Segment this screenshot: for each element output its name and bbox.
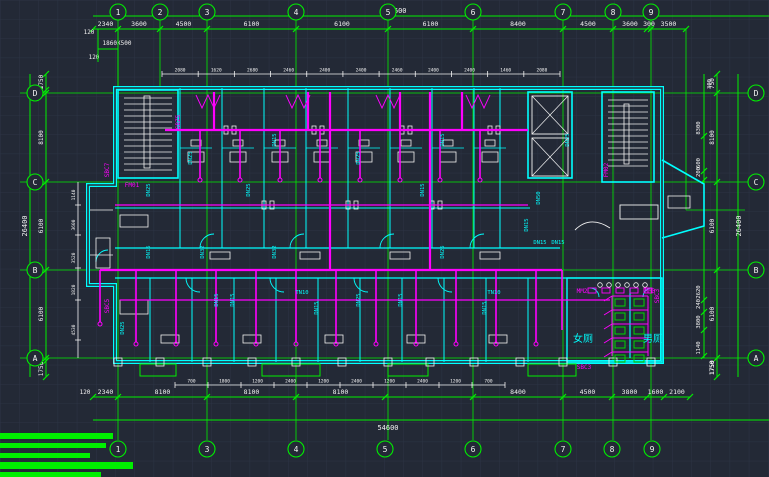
snap-grid [0, 0, 769, 477]
title-block-bar [0, 472, 101, 477]
dim-small-text: 2400 [464, 68, 475, 74]
pipe-label-DN25: DN25 [246, 183, 252, 196]
dim-text: 3500 [661, 20, 677, 28]
dim-text: 3600 [131, 20, 147, 28]
dim-text: 4500 [580, 20, 596, 28]
dim-text: 8100 [244, 388, 260, 396]
dim-text: 2100 [669, 388, 685, 396]
title-block-bar [0, 462, 133, 469]
grid-bubble-top-5-text: 5 [386, 8, 391, 17]
dim-small-text: 2400 [285, 379, 296, 385]
room-label-mens-toilet: 男厕 [643, 333, 663, 345]
grid-bubble-top-4-text: 4 [294, 8, 299, 17]
grid-bubble-bottom-4-text: 4 [294, 445, 299, 454]
dim-small-text: 2400 [428, 68, 439, 74]
dim-small-text: 2080 [536, 68, 547, 74]
dim-text: 6100 [38, 218, 45, 233]
dim-text: 600 [696, 158, 702, 168]
grid-bubble-top-1-text: 1 [116, 8, 121, 17]
dim-text: 300 [707, 79, 713, 89]
dim-text: 8100 [155, 388, 171, 396]
pipe-label-DN15: DN15 [272, 133, 278, 146]
grid-bubble-top-6-text: 6 [471, 8, 476, 17]
dim-text: 8400 [510, 20, 526, 28]
dim-overall-bottom-text: 54600 [377, 424, 398, 432]
dim-small-text: 1200 [450, 379, 461, 385]
dim-small-text: 1460 [500, 68, 511, 74]
dim-small-text: 1620 [211, 68, 222, 74]
grid-bubble-bottom-8-text: 8 [610, 445, 615, 454]
pipe-label-DN15: DN15 [398, 293, 404, 306]
pipe-label-DN15: DN15 [420, 183, 426, 196]
dim-small-text: 1200 [318, 379, 329, 385]
dim-text: 240 [696, 299, 702, 309]
door-label-MM2: MM2 [577, 288, 588, 295]
dim-small-text: 4530 [71, 324, 77, 335]
dim-text: 6100 [334, 20, 350, 28]
dim-text: 6100 [709, 306, 716, 321]
grid-bubble-top-8-text: 8 [611, 8, 616, 17]
dim-small-text: 2400 [356, 68, 367, 74]
dim-text: 120 [80, 389, 91, 396]
pipe-label-DN25: DN25 [356, 293, 362, 306]
dim-small-text: 1820 [71, 284, 77, 295]
grid-bubble-right-C-text: C [754, 178, 759, 187]
dim-small-text: 1140 [71, 189, 77, 200]
pipe-label-DN25: DN25 [565, 133, 571, 146]
dim-text: 1140 [696, 341, 702, 354]
title-block-bar [0, 443, 106, 448]
dim-text: 6100 [244, 20, 260, 28]
grid-bubble-right-A-text: A [754, 354, 759, 363]
riser-label-SBC5: SBC5 [104, 298, 111, 313]
dim-text: 3800 [696, 315, 702, 328]
dim-small-text: 2680 [247, 68, 258, 74]
dim-small-text: 3520 [71, 252, 77, 263]
dim-text: 4500 [580, 388, 596, 396]
dim-text: 8300 [696, 121, 702, 134]
door-label-FM02: FM02 [603, 162, 610, 177]
grid-bubble-right-B-text: B [754, 266, 759, 275]
cad-viewport[interactable]: 5460023403600450061006100610084004500360… [0, 0, 769, 477]
dim-text: 120 [84, 29, 95, 36]
dim-text: 6100 [709, 218, 716, 233]
dim-small-text: 1200 [384, 379, 395, 385]
dim-text: 3800 [622, 388, 638, 396]
pipe-label-DN25: DN25 [188, 151, 194, 164]
title-block-bar [0, 433, 113, 439]
riser-label-SBC3: SBC3 [577, 364, 592, 371]
pipe-label-DN15: DN15 [230, 293, 236, 306]
grid-bubble-bottom-6-text: 6 [471, 445, 476, 454]
pipe-label-TN10: TN10 [295, 290, 308, 296]
dim-text: 300 [643, 20, 655, 28]
dim-overall-left-text: 26400 [21, 215, 29, 236]
pipe-label-DN25: DN25 [120, 321, 126, 334]
riser-label-SBC7: SBC7 [104, 162, 111, 177]
dim-text: 8100 [38, 130, 45, 145]
pipe-label-DN50: DN50 [536, 191, 542, 204]
dim-text: 200 [696, 167, 702, 177]
pipe-label-DN15: DN15 [314, 301, 320, 314]
grid-bubble-bottom-7-text: 7 [561, 445, 566, 454]
grid-bubble-top-3-text: 3 [205, 8, 210, 17]
dim-text: 8400 [510, 388, 526, 396]
pipe-label-DN25: DN25 [146, 183, 152, 196]
pipe-label-DN15: DN15 [214, 293, 220, 306]
dim-small-text: 700 [484, 379, 492, 385]
grid-bubble-top-2-text: 2 [158, 8, 163, 17]
door-label-FM01: FM01 [125, 182, 140, 189]
door-label-MM3: MM3 [645, 288, 656, 295]
grid-bubble-right-D-text: D [754, 89, 759, 98]
pipe-label-DN25: DN25 [440, 245, 446, 258]
dim-small-text: 700 [187, 379, 195, 385]
pipe-label-DN15: DN15 [533, 240, 546, 246]
pipe-label-DN15: DN15 [551, 240, 564, 246]
dim-text: 6100 [423, 20, 439, 28]
floor-plan-drawing: 5460023403600450061006100610084004500360… [0, 0, 769, 477]
dim-text: 1860X500 [103, 40, 132, 47]
dim-small-text: 3600 [71, 219, 77, 230]
grid-bubble-left-B-text: B [33, 266, 38, 275]
pipe-label-DN15: DN15 [146, 245, 152, 258]
dim-text: 8100 [709, 130, 716, 145]
dim-text: 4500 [176, 20, 192, 28]
grid-bubble-top-7-text: 7 [561, 8, 566, 17]
dim-small-text: 1800 [219, 379, 230, 385]
pipe-label-DN25: DN25 [356, 151, 362, 164]
dim-small-text: 2460 [283, 68, 294, 74]
dim-text: 2620 [696, 285, 702, 298]
dim-text: 1600 [648, 388, 664, 396]
dim-text: 6100 [38, 306, 45, 321]
title-block-bar [0, 453, 90, 458]
pipe-label-DN32: DN32 [272, 245, 278, 258]
dim-small-text: 1200 [252, 379, 263, 385]
grid-bubble-left-C-text: C [33, 178, 38, 187]
room-label-womens-toilet: 女厕 [573, 332, 593, 345]
grid-bubble-bottom-9-text: 9 [650, 445, 655, 454]
dim-small-text: 2400 [351, 379, 362, 385]
pipe-label-DN32: DN32 [200, 245, 206, 258]
grid-bubble-bottom-3-text: 3 [205, 445, 210, 454]
grid-bubble-top-9-text: 9 [649, 8, 654, 17]
dim-small-text: 2460 [392, 68, 403, 74]
pipe-label-TN10: TN10 [487, 290, 500, 296]
pipe-label-DN15: DN15 [440, 133, 446, 146]
dim-text: 2340 [98, 388, 114, 396]
grid-bubble-bottom-1-text: 1 [116, 445, 121, 454]
grid-bubble-bottom-5-text: 5 [383, 445, 388, 454]
dim-overall-right-text: 26400 [735, 215, 743, 236]
riser-label-SBZ5: SBZ5 [175, 114, 182, 129]
dim-small-text: 2400 [319, 68, 330, 74]
dim-small-text: 2080 [175, 68, 186, 74]
grid-bubble-left-D-text: D [33, 89, 38, 98]
grid-bubble-left-A-text: A [33, 354, 38, 363]
dim-text: 1750 [709, 360, 716, 375]
dim-small-text: 2400 [417, 379, 428, 385]
dim-text: 2340 [98, 20, 114, 28]
dim-text: 3600 [622, 20, 638, 28]
pipe-label-DN15: DN15 [524, 218, 530, 231]
pipe-label-DN15: DN15 [482, 301, 488, 314]
dim-text: 8100 [333, 388, 349, 396]
